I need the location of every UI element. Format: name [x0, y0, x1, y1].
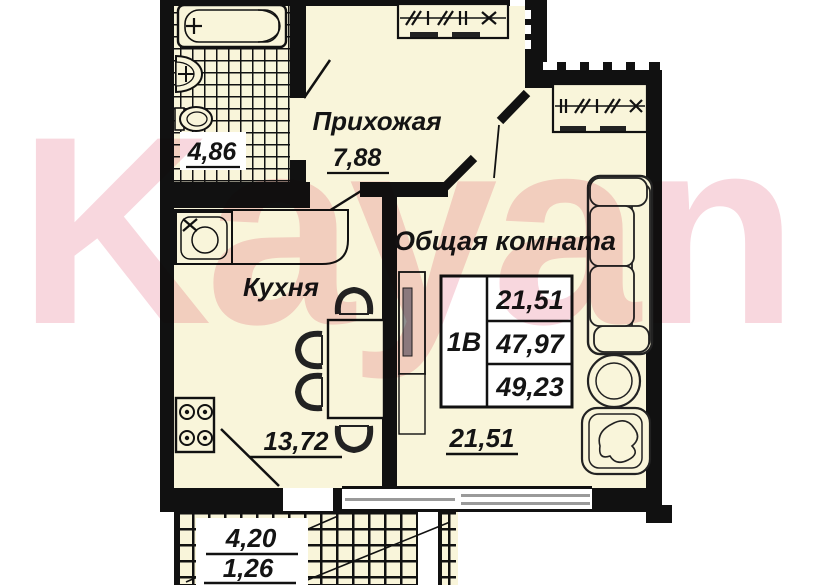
- hallway-area: 7,88: [333, 144, 382, 172]
- stove-icon: [176, 398, 214, 452]
- sofa-icon: [588, 176, 652, 354]
- windows: [342, 486, 592, 512]
- wardrobe-icon: [398, 4, 508, 38]
- bathroom-area: 4,86: [187, 138, 238, 166]
- tv-stand-icon: [399, 272, 425, 434]
- wall-left: [160, 0, 174, 512]
- wardrobe-icon: [553, 84, 647, 132]
- living-room-name: Общая комната: [394, 226, 616, 256]
- dining-table-icon: [328, 320, 384, 418]
- bathtub-icon: [178, 5, 286, 47]
- balcony: 4,20 1,26: [178, 512, 456, 585]
- living-room-area: 21,51: [448, 423, 514, 453]
- area-living: 21,51: [495, 285, 564, 315]
- floor-plan-drawing: 4,20 1,26 4,86: [0, 0, 828, 585]
- living-room-window: [461, 494, 590, 497]
- armchair-icon: [582, 408, 650, 474]
- area-total-with-balcony: 49,23: [495, 372, 564, 402]
- area-total: 47,97: [495, 329, 566, 359]
- kitchen-window: [345, 498, 455, 501]
- balcony-area-full: 4,20: [225, 523, 277, 553]
- kitchen-area: 13,72: [263, 426, 329, 456]
- bathroom: 4,86: [174, 2, 290, 182]
- round-table-icon: [588, 355, 640, 407]
- flat-type: 1В: [447, 327, 482, 357]
- balcony-area-reduced: 1,26: [223, 553, 274, 583]
- hallway-name: Прихожая: [312, 106, 441, 136]
- kitchen-name: Кухня: [243, 272, 319, 302]
- apartment-info-table: 1В 21,51 47,97 49,23: [441, 276, 572, 407]
- kitchen-counter-icon: [174, 210, 348, 264]
- floor-plan: 4,20 1,26 4,86: [0, 0, 828, 585]
- toilet-icon: [175, 107, 212, 131]
